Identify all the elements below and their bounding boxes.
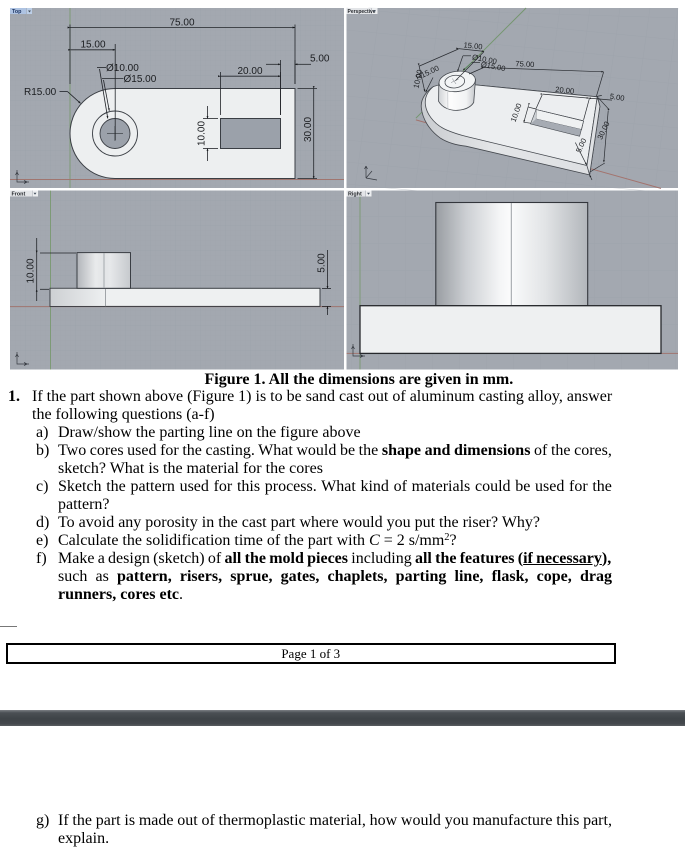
svg-text:Front: Front (12, 192, 26, 198)
svg-text:20.00: 20.00 (237, 66, 262, 77)
svg-text:Right: Right (348, 192, 362, 198)
svg-text:30.00: 30.00 (303, 117, 314, 142)
svg-text:Ø15.00: Ø15.00 (124, 74, 157, 85)
svg-text:75.00: 75.00 (515, 59, 534, 69)
svg-text:R15.00: R15.00 (24, 87, 57, 98)
svg-text:10.00: 10.00 (26, 258, 37, 283)
svg-text:75.00: 75.00 (169, 18, 194, 29)
svg-text:5.00: 5.00 (317, 253, 328, 273)
svg-text:Perspective: Perspective (348, 9, 376, 15)
svg-text:10.00: 10.00 (197, 121, 208, 146)
svg-text:15.00: 15.00 (80, 40, 105, 51)
svg-text:Top: Top (12, 9, 22, 15)
svg-text:Ø10.00: Ø10.00 (106, 63, 139, 74)
svg-text:5.00: 5.00 (310, 54, 330, 65)
